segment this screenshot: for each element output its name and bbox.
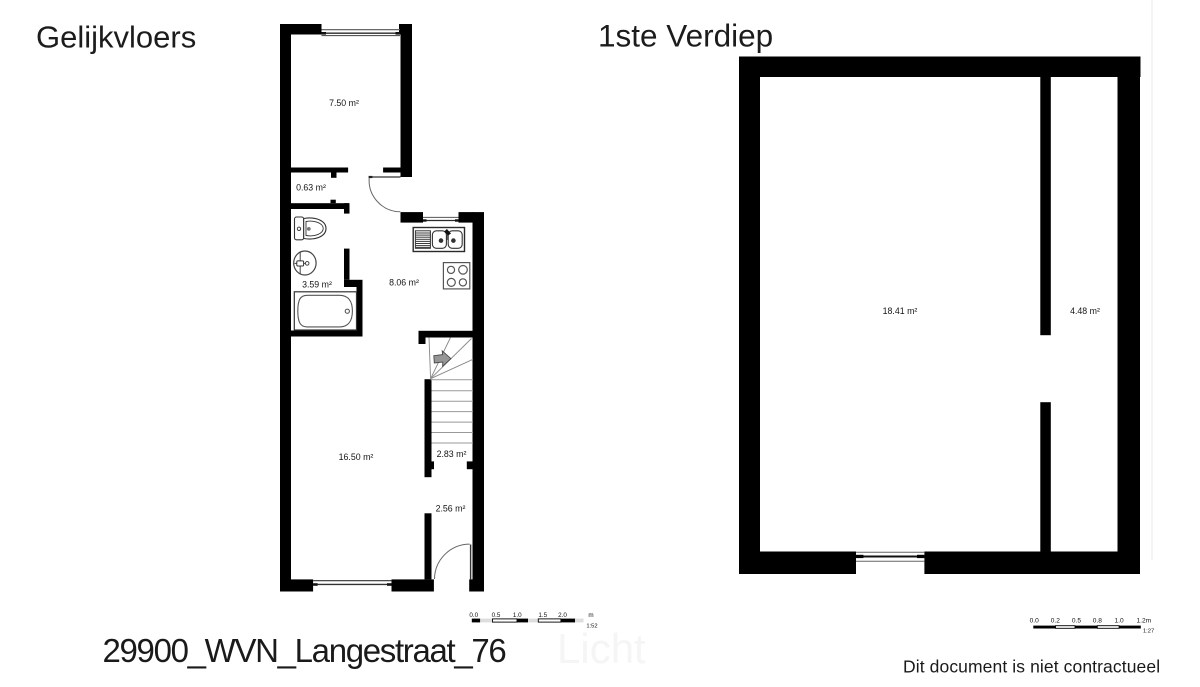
svg-text:2.0: 2.0 — [558, 612, 567, 619]
svg-text:1ste Verdiep: 1ste Verdiep — [598, 18, 773, 54]
svg-text:Gelijkvloers: Gelijkvloers — [36, 20, 196, 55]
svg-text:16.50 m²: 16.50 m² — [339, 452, 374, 462]
svg-text:0.2: 0.2 — [1051, 618, 1060, 625]
svg-text:1.0: 1.0 — [513, 612, 522, 619]
svg-text:7.50 m²: 7.50 m² — [329, 98, 359, 108]
svg-text:0.5: 0.5 — [1072, 618, 1081, 625]
svg-text:m: m — [588, 612, 593, 619]
svg-text:Licht: Licht — [557, 625, 646, 672]
svg-text:0.5: 0.5 — [492, 612, 501, 619]
svg-text:2.83 m²: 2.83 m² — [437, 449, 467, 459]
svg-text:4.48 m²: 4.48 m² — [1070, 306, 1100, 316]
svg-text:1.2m: 1.2m — [1136, 618, 1151, 625]
svg-text:3.59 m²: 3.59 m² — [302, 280, 332, 290]
svg-text:Dit document is niet contractu: Dit document is niet contractueel — [903, 657, 1160, 677]
svg-text:29900_WVN_Langestraat_76: 29900_WVN_Langestraat_76 — [103, 632, 506, 669]
svg-text:1.0: 1.0 — [1115, 618, 1124, 625]
svg-text:1:27: 1:27 — [1143, 629, 1154, 635]
svg-text:8.06 m²: 8.06 m² — [389, 278, 419, 288]
svg-text:1.5: 1.5 — [538, 612, 547, 619]
svg-text:0.8: 0.8 — [1093, 618, 1102, 625]
svg-text:0.63 m²: 0.63 m² — [296, 183, 326, 193]
svg-text:0.0: 0.0 — [1030, 618, 1039, 625]
svg-text:0.0: 0.0 — [469, 612, 478, 619]
svg-text:2.56 m²: 2.56 m² — [436, 504, 466, 514]
svg-text:18.41 m²: 18.41 m² — [883, 306, 918, 316]
